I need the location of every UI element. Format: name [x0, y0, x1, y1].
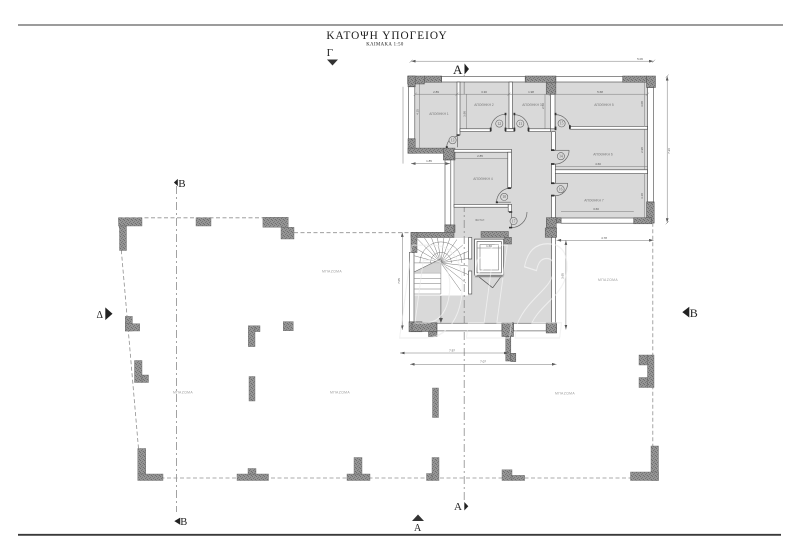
svg-text:1.85: 1.85	[426, 159, 432, 163]
svg-text:15: 15	[560, 122, 564, 126]
svg-text:2.85: 2.85	[477, 154, 483, 158]
svg-text:D12: D12	[398, 216, 568, 367]
svg-text:ΜΠΑΖΩΜΑ: ΜΠΑΖΩΜΑ	[555, 392, 575, 396]
svg-text:B: B	[178, 178, 185, 190]
svg-text:3.08: 3.08	[640, 101, 644, 107]
svg-text:A: A	[414, 523, 422, 534]
svg-text:A: A	[454, 501, 462, 513]
svg-text:ΚΛΙΜΑΚΑ 1:50: ΚΛΙΜΑΚΑ 1:50	[366, 43, 404, 48]
svg-text:Γ: Γ	[327, 47, 333, 59]
svg-text:ΜΠΑΖΩΜΑ: ΜΠΑΖΩΜΑ	[322, 270, 342, 274]
svg-text:7.26: 7.26	[667, 148, 671, 154]
svg-text:ΑΠΟΘΗΚΗ 5: ΑΠΟΘΗΚΗ 5	[594, 103, 614, 107]
svg-text:4.78: 4.78	[601, 236, 607, 240]
svg-text:11: 11	[519, 122, 523, 126]
svg-text:2.89: 2.89	[433, 90, 439, 94]
svg-text:ΑΠΟΘΗΚΗ 2: ΑΠΟΘΗΚΗ 2	[474, 103, 494, 107]
svg-text:2.98: 2.98	[640, 147, 644, 153]
svg-text:12: 12	[498, 122, 502, 126]
svg-text:ΑΠΟΘΗΚΗ 4: ΑΠΟΘΗΚΗ 4	[473, 177, 493, 181]
svg-text:ΜΠΑΖΩΜΑ: ΜΠΑΖΩΜΑ	[173, 391, 193, 395]
svg-text:14: 14	[559, 155, 563, 159]
svg-text:5.06: 5.06	[637, 57, 643, 61]
svg-text:3.18: 3.18	[640, 193, 644, 199]
svg-text:ΚΑΤΟΨΗ ΥΠΟΓΕΙΟΥ: ΚΑΤΟΨΗ ΥΠΟΓΕΙΟΥ	[326, 30, 447, 42]
svg-text:10: 10	[502, 195, 506, 199]
svg-text:ΜΠΑΖΩΜΑ: ΜΠΑΖΩΜΑ	[330, 391, 350, 395]
svg-text:B: B	[690, 306, 698, 320]
svg-text:ΑΠΟΘΗΚΗ 7: ΑΠΟΘΗΚΗ 7	[584, 199, 604, 203]
svg-text:3.98: 3.98	[462, 111, 466, 117]
svg-text:ΑΠΟΘΗΚΗ 3: ΑΠΟΘΗΚΗ 3	[522, 103, 542, 107]
svg-text:3.60: 3.60	[593, 207, 599, 211]
svg-text:16: 16	[559, 188, 563, 192]
svg-text:Δ: Δ	[97, 310, 104, 321]
svg-text:1.98: 1.98	[528, 90, 534, 94]
svg-text:B: B	[180, 517, 187, 528]
svg-text:ΑΠΟΘΗΚΗ 6: ΑΠΟΘΗΚΗ 6	[593, 153, 613, 157]
svg-text:ΑΠΟΘΗΚΗ 1: ΑΠΟΘΗΚΗ 1	[429, 112, 449, 116]
svg-text:13: 13	[451, 139, 455, 143]
svg-text:4.60: 4.60	[595, 162, 601, 166]
svg-text:3.30: 3.30	[481, 90, 487, 94]
svg-text:4.15: 4.15	[415, 109, 419, 115]
svg-text:A: A	[453, 62, 463, 77]
svg-text:ΜΠΑΖΩΜΑ: ΜΠΑΖΩΜΑ	[598, 278, 618, 282]
svg-text:5.68: 5.68	[597, 90, 603, 94]
